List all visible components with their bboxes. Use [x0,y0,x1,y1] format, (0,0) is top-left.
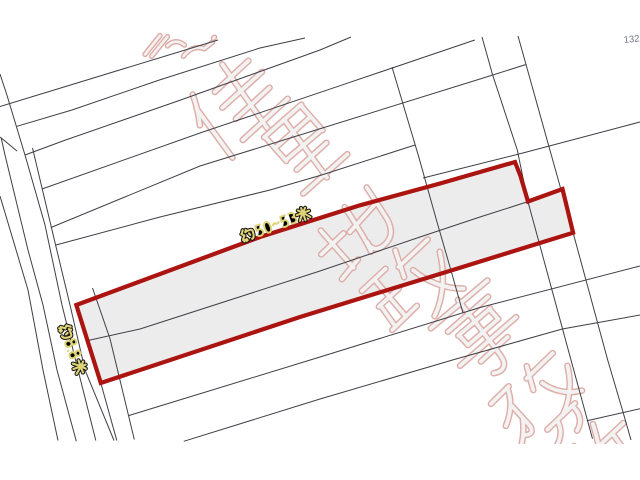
svg-text:132: 132 [623,33,640,46]
